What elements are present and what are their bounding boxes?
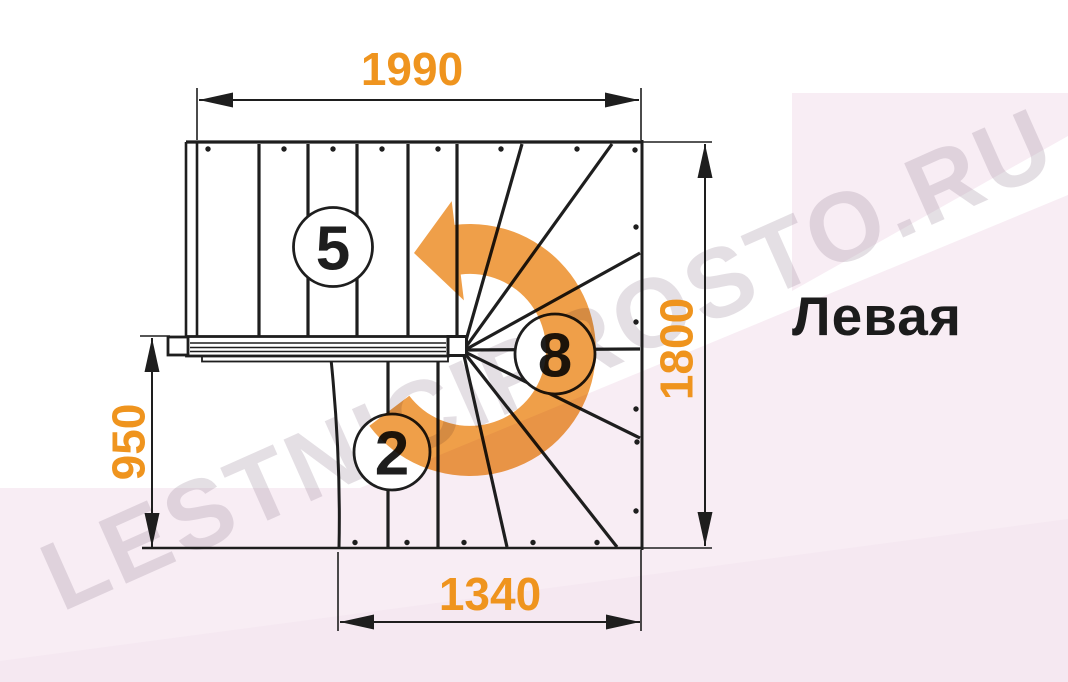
stair-orientation-label: Левая: [792, 284, 962, 348]
dimension-top-width: 1990: [361, 43, 463, 95]
landing-beam: [168, 337, 467, 362]
upper-flight-step-count: 5: [316, 214, 350, 283]
beam-end-post: [168, 337, 188, 355]
landing-beam-body: [187, 337, 449, 357]
dimension-right-height: 1800: [651, 298, 703, 400]
newel-post: [448, 337, 467, 356]
lower-flight-curved-edge: [331, 359, 339, 548]
dimension-left-height: 950: [103, 404, 155, 481]
stair-plan-screenshot: LESTNICIPROSTO.RU: [0, 0, 1068, 682]
dimension-bottom-width: 1340: [439, 568, 541, 620]
